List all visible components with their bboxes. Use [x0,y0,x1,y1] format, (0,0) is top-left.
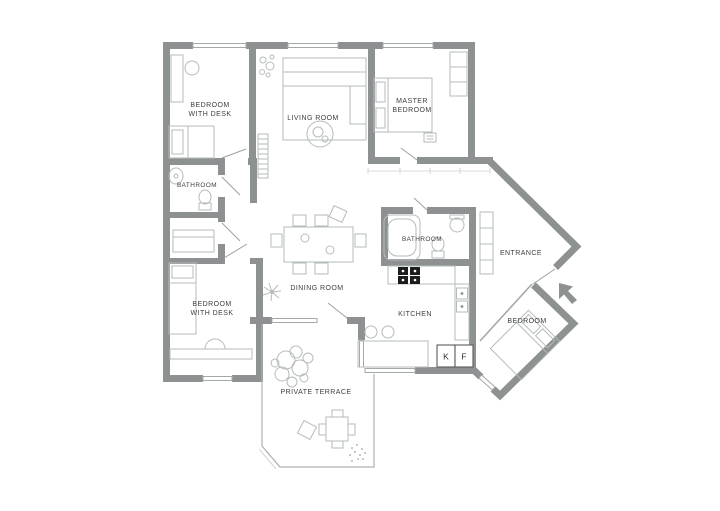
tv-console-hatch [258,139,268,174]
label-bedroom3: BEDROOM [507,318,546,325]
label-dining: DINING ROOM [290,285,343,292]
label-bedroom2-line2: WITH DESK [191,310,234,317]
chair [329,206,347,223]
window [193,44,246,48]
window [272,319,317,323]
sink-drain [461,305,464,308]
bed-pillow [172,130,183,154]
wardrobe [480,212,493,274]
wall-corridor-west [218,197,225,222]
wall-corridor-west [218,158,225,175]
floor-plan-svg: K F [0,0,720,511]
door-bedroom2 [224,244,247,258]
bed-pillow [376,108,385,128]
desk [170,349,252,359]
floor-plan: K F [0,0,720,511]
wall-master-south [368,157,400,164]
desk [171,55,183,102]
door-bedroom1 [222,149,246,158]
wardrobe [450,52,467,96]
unit-f-label: F [461,352,466,362]
wall-bathroom2-north [427,207,476,214]
label-bedroom1-line1: BEDROOM [190,102,229,109]
terrace-chair [332,441,343,448]
table-decor [326,246,334,254]
door-bathroom1 [222,177,240,195]
wall-dining-south [250,317,272,324]
wall-master-east [468,42,475,164]
label-master-line1: MASTER [396,98,428,105]
table-decor [301,234,309,242]
wall-corridor-west [218,244,225,264]
window [479,375,495,390]
chair [293,215,306,226]
plant-icon [263,283,281,301]
label-bedroom1-line2: WITH DESK [189,111,232,118]
chair [315,263,328,274]
plant-icon [260,55,275,77]
label-bedroom2-line1: BEDROOM [192,301,231,308]
desk-chair [185,61,199,75]
wall-top [338,42,383,49]
entrance-arrow-icon [559,283,577,304]
wall-bathroom1-south [163,212,225,218]
plant-dots-icon [349,444,366,462]
door-terrace [328,303,347,318]
terrace-chair [332,410,343,417]
label-bathroom2: BATHROOM [402,236,442,243]
door-bathroom2 [414,198,427,210]
storage-shelf [173,230,214,252]
toilet-tank [432,251,444,258]
desk-chair [205,339,225,349]
label-terrace: PRIVATE TERRACE [281,389,352,396]
walls [163,42,577,396]
dimension-line [368,168,490,174]
floor-outlet [424,133,436,142]
coffee-table-plant [313,127,323,137]
label-master-line2: BEDROOM [392,107,431,114]
bed [169,263,196,334]
bed [169,126,214,158]
window [365,369,415,373]
bathroom1-fixtures [169,168,211,210]
wall-kitchen-south [415,367,473,374]
sink-drain [174,174,178,178]
rug [283,58,366,140]
dining-table [284,227,353,262]
wall-bathroom2-north [381,207,413,214]
wall-bottom-left [163,375,203,382]
chair [315,215,328,226]
terrace-chair [319,424,326,435]
label-kitchen: KITCHEN [398,311,432,318]
terrace-furniture [271,346,366,462]
label-living: LIVING ROOM [287,115,339,122]
wall-bedroom3 [493,285,574,396]
chair [355,234,366,247]
wall-master-south [417,157,493,164]
wall-kitchen-west [358,317,365,340]
stool [382,326,394,338]
door-storage [222,223,240,241]
window [288,44,338,48]
toilet [199,190,211,204]
sofa-chaise [350,86,366,124]
coffee-table [307,121,333,147]
master-furniture [374,52,467,142]
window [383,44,433,48]
bed-pillow [172,266,193,278]
terrace-chair [348,424,355,435]
wall-corridor-east [250,165,257,203]
plant-icon [271,346,313,387]
sink-drain [461,292,464,295]
label-entrance: ENTRANCE [500,250,542,257]
chair [271,234,282,247]
window [360,340,364,367]
stool [365,326,377,338]
window [203,377,232,381]
wall-bedroom1-east [249,42,256,165]
label-bathroom1: BATHROOM [177,182,217,189]
wall-bedroom1-south [163,158,218,165]
kf-units: K F [437,345,473,367]
sink [450,218,464,232]
island-counter [358,341,428,367]
tv-console [258,134,268,178]
bed-pillow [376,82,385,102]
door-master [401,148,417,160]
stove-icon [398,267,420,284]
terrace-table [326,417,348,441]
wall-bedroom2-top [250,258,263,264]
coffee-table-plant [322,136,328,142]
bed-line [517,322,548,353]
door-entrance [533,269,555,284]
bed [374,78,432,132]
unit-k-label: K [443,352,449,362]
floor-outlet-lines [427,136,434,139]
chair [293,263,306,274]
terrace-chair [298,421,317,440]
storage-furniture [173,230,214,252]
